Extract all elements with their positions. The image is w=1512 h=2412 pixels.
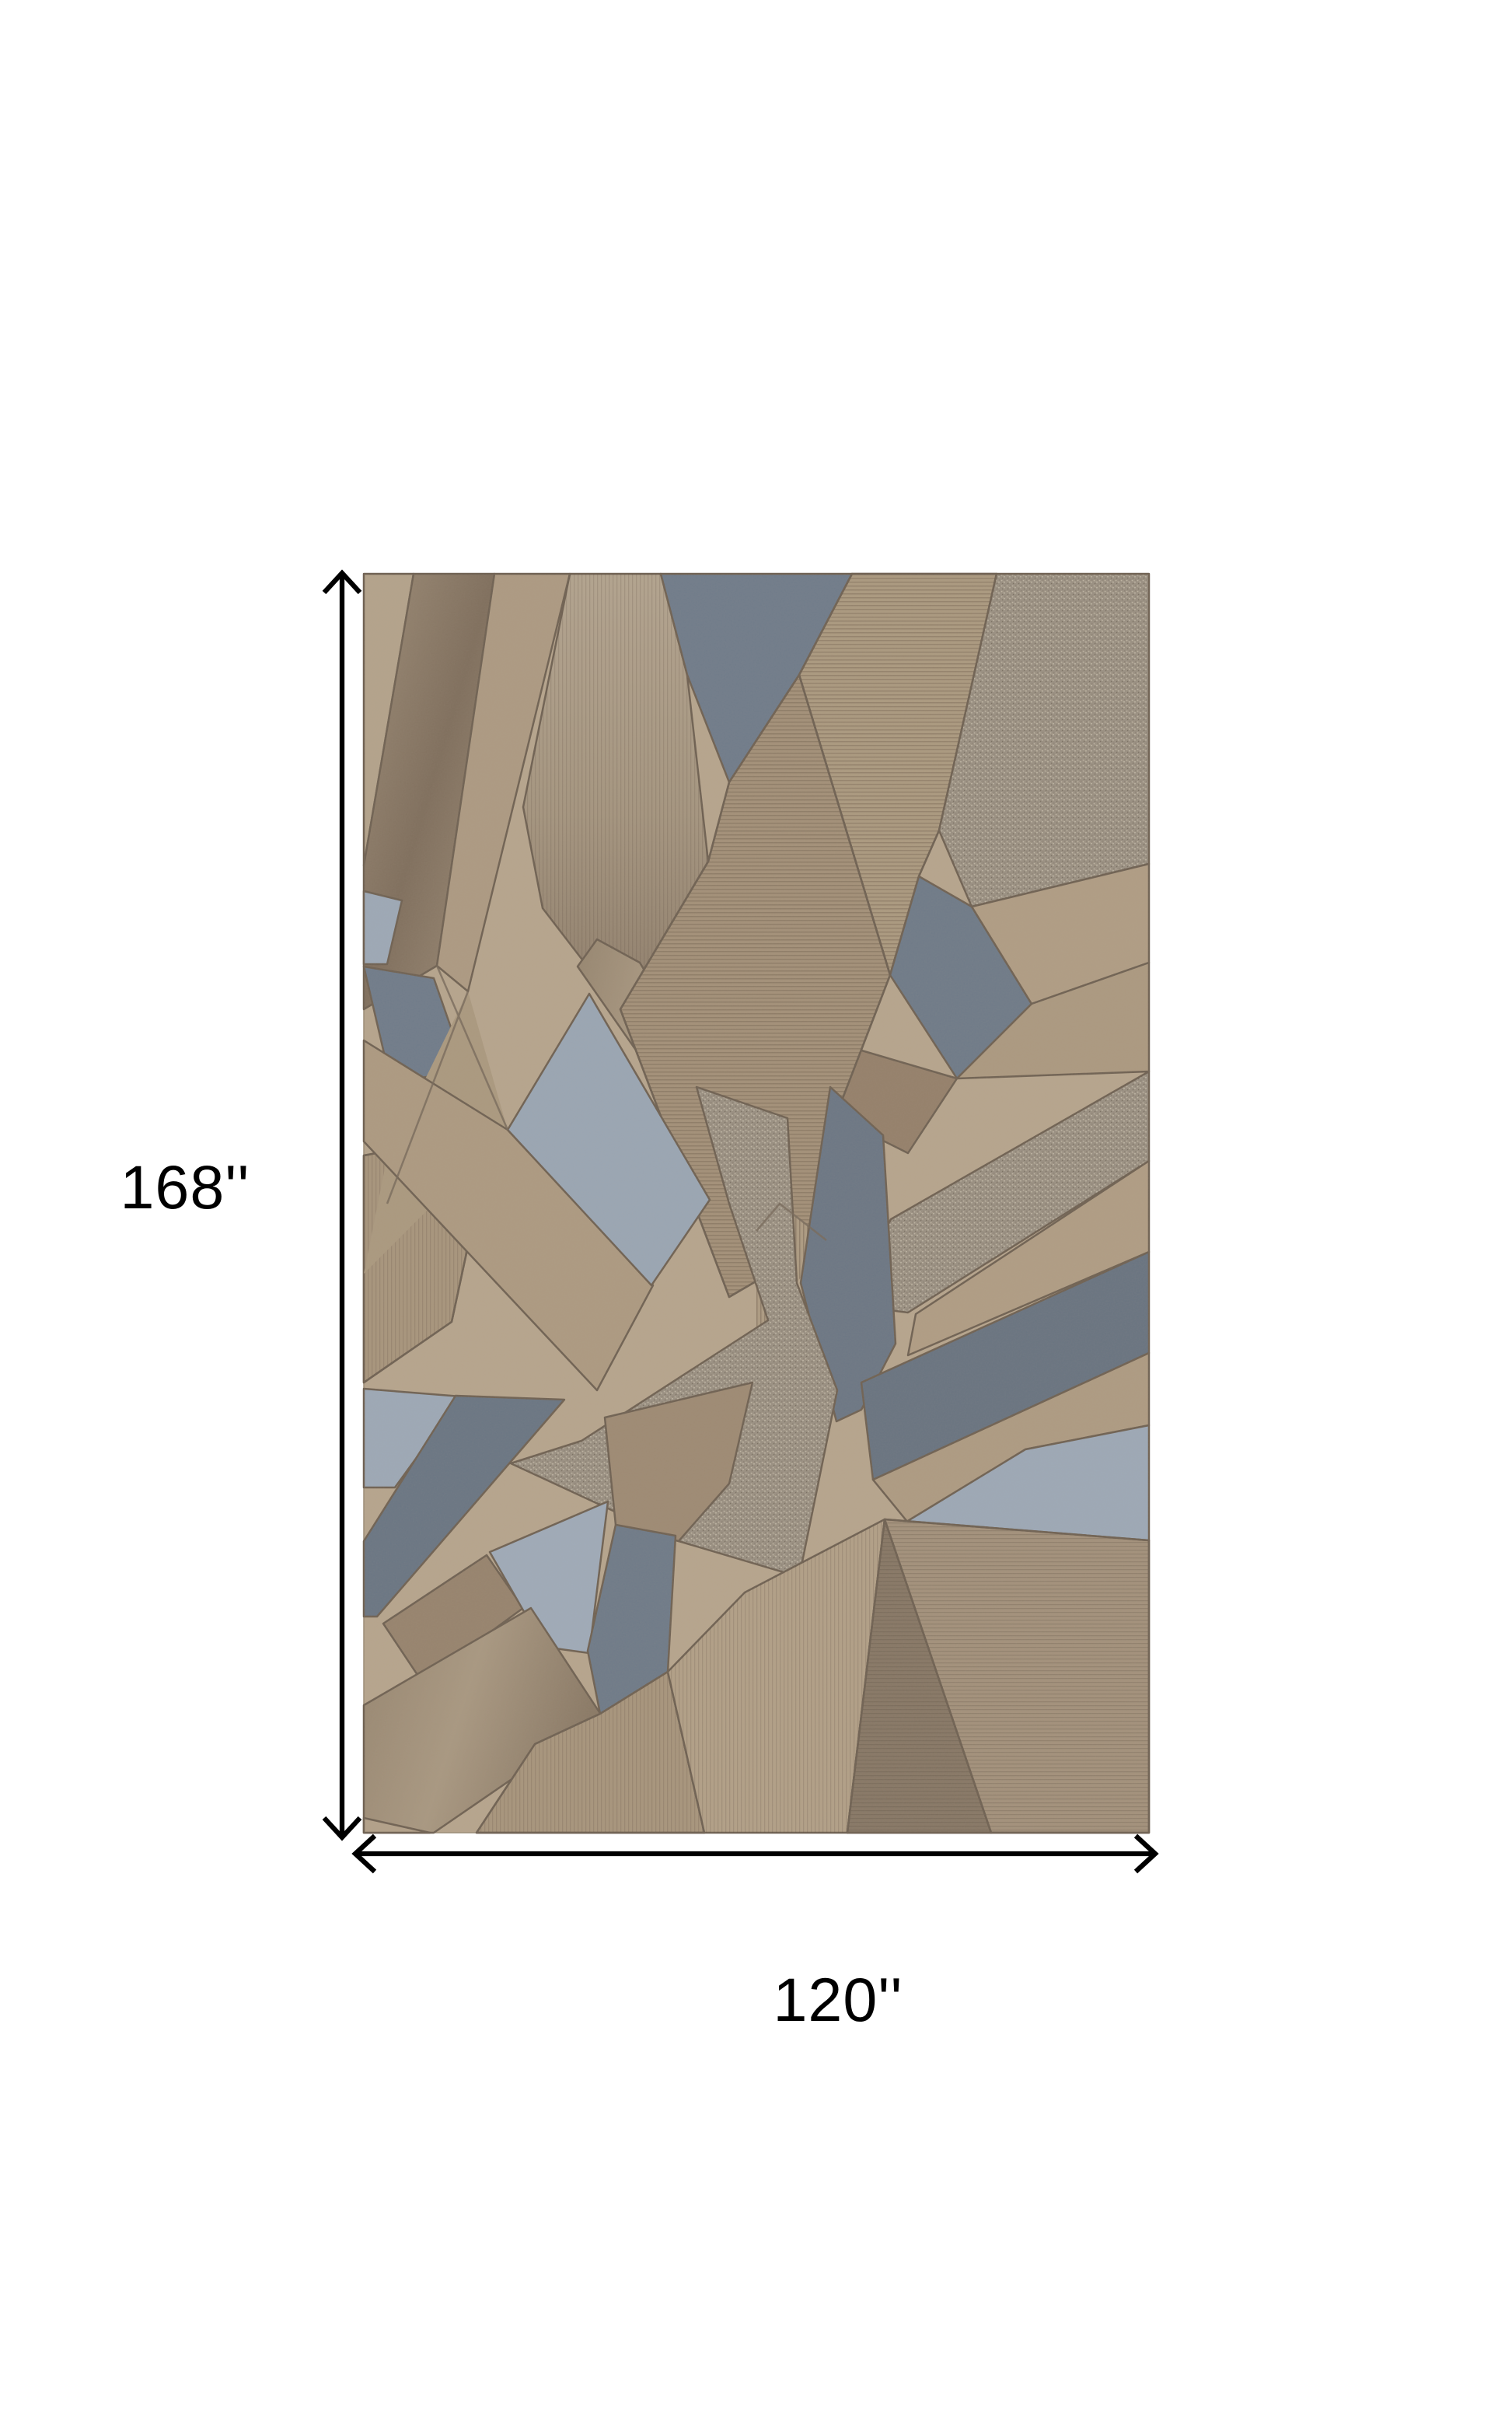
svg-text:168'': 168''	[120, 1152, 250, 1222]
svg-text:120'': 120''	[773, 1965, 903, 2034]
